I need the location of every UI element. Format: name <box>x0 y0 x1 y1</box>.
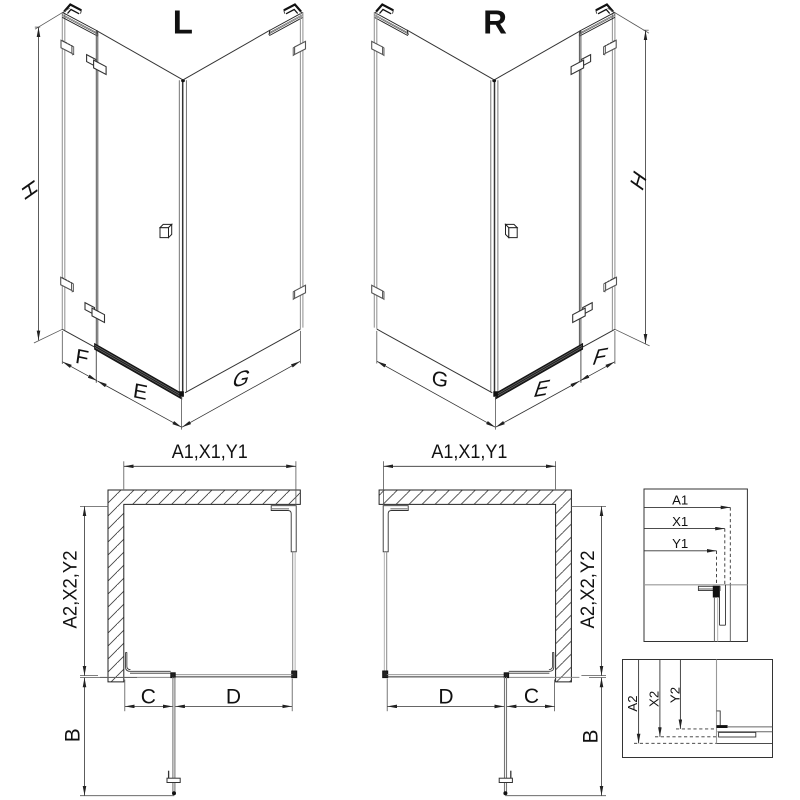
svg-text:A2,X2,Y2: A2,X2,Y2 <box>60 551 82 629</box>
svg-text:L: L <box>173 4 193 41</box>
svg-text:A1: A1 <box>672 493 688 508</box>
svg-text:E: E <box>531 375 554 402</box>
svg-text:X2: X2 <box>646 691 661 707</box>
svg-text:D: D <box>438 686 453 709</box>
svg-text:H: H <box>17 176 42 205</box>
svg-text:D: D <box>226 686 241 709</box>
svg-text:G: G <box>430 367 450 393</box>
svg-text:H: H <box>626 166 651 195</box>
svg-text:X1: X1 <box>672 514 688 529</box>
svg-text:C: C <box>524 685 539 708</box>
svg-text:B: B <box>62 728 85 742</box>
svg-text:Y1: Y1 <box>672 536 688 551</box>
svg-text:F: F <box>74 345 90 370</box>
svg-text:A1,X1,Y1: A1,X1,Y1 <box>172 441 248 463</box>
svg-text:A2,X2,Y2: A2,X2,Y2 <box>577 551 599 629</box>
svg-text:A1,X1,Y1: A1,X1,Y1 <box>431 441 507 463</box>
svg-text:B: B <box>580 729 603 743</box>
svg-text:A2: A2 <box>625 695 640 711</box>
svg-text:Y2: Y2 <box>668 687 683 703</box>
svg-text:E: E <box>132 380 149 405</box>
svg-text:R: R <box>483 3 507 40</box>
svg-text:C: C <box>141 685 156 708</box>
svg-text:G: G <box>229 365 254 393</box>
